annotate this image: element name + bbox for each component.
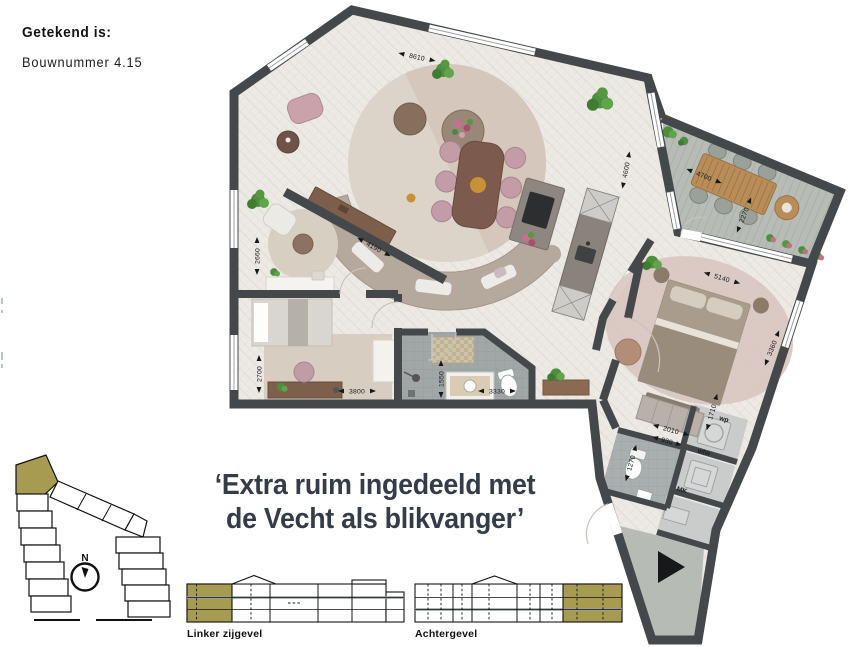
elevation-rear bbox=[415, 576, 622, 622]
hall-bench bbox=[543, 380, 589, 395]
svg-text:2660: 2660 bbox=[254, 248, 261, 264]
svg-text:2700: 2700 bbox=[256, 366, 263, 382]
floorplan-canvas: 8610 4600 4190 4700 2270 5140 3360 2660 … bbox=[0, 0, 852, 647]
quote-line-2: de Vecht als blikvanger’ bbox=[196, 502, 553, 536]
north-compass-icon: N bbox=[72, 553, 99, 591]
quote-line-1: ‘Extra ruim ingedeeld met bbox=[196, 468, 553, 502]
elevation-left-side bbox=[187, 576, 404, 623]
elevation-label-left: Linker zijgevel bbox=[187, 628, 262, 640]
page-edge-marks bbox=[1, 298, 3, 368]
site-plan: N bbox=[16, 455, 170, 620]
svg-text:N: N bbox=[81, 553, 88, 564]
svg-text:3330: 3330 bbox=[489, 388, 505, 395]
marketing-quote: ‘Extra ruim ingedeeld met de Vecht als b… bbox=[196, 468, 553, 536]
floorplan-page: { "header": { "drawn_label": "Getekend i… bbox=[0, 0, 852, 647]
svg-text:1550: 1550 bbox=[438, 371, 445, 387]
elevation-label-rear: Achtergevel bbox=[415, 628, 477, 640]
svg-text:3800: 3800 bbox=[349, 388, 365, 395]
dining-set bbox=[430, 137, 527, 234]
